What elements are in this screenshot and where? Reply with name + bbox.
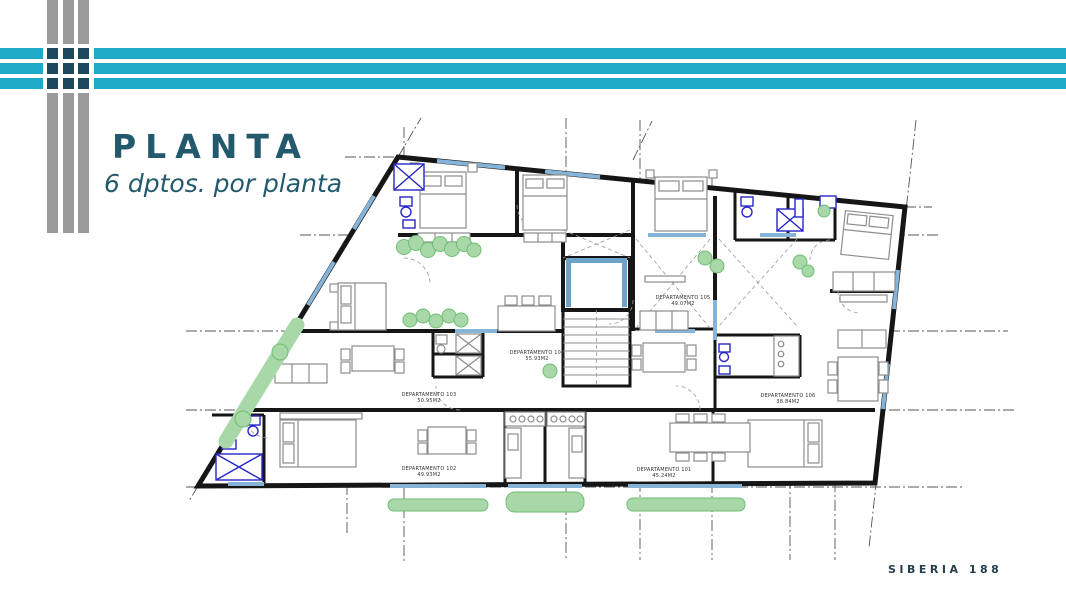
shower-box bbox=[216, 454, 262, 480]
bed bbox=[841, 211, 893, 260]
bed bbox=[338, 283, 386, 330]
sink bbox=[795, 199, 803, 217]
tv-console bbox=[840, 295, 887, 302]
kitchen bbox=[774, 336, 799, 376]
shrub-row bbox=[506, 492, 584, 512]
side-table bbox=[330, 284, 338, 292]
side-table bbox=[646, 170, 654, 178]
sofa bbox=[275, 364, 327, 383]
side-table bbox=[709, 170, 717, 178]
dining-set bbox=[341, 346, 404, 373]
shrub-row bbox=[388, 499, 488, 511]
side-table bbox=[468, 163, 477, 172]
side-table bbox=[330, 322, 338, 330]
presentation-slide: PLANTA 6 dptos. por planta SIBERIA 188 bbox=[0, 0, 1066, 600]
sofa bbox=[833, 272, 895, 291]
dining-set bbox=[418, 427, 476, 454]
bed bbox=[748, 420, 822, 467]
wardrobe bbox=[524, 233, 566, 242]
sideboard bbox=[280, 413, 362, 419]
bed bbox=[523, 175, 567, 230]
bed bbox=[420, 172, 466, 228]
floor-plan: DEPARTAMENTO 10145.24M2 DEPARTAMENTO 102… bbox=[0, 0, 1066, 600]
bed bbox=[280, 420, 356, 467]
sofa bbox=[838, 330, 886, 348]
shrub-row bbox=[627, 498, 745, 511]
bed bbox=[655, 177, 707, 231]
sink bbox=[403, 220, 415, 228]
tv-console bbox=[645, 276, 685, 282]
sofa bbox=[640, 311, 688, 330]
sink bbox=[719, 366, 730, 374]
shower-box bbox=[394, 164, 424, 190]
dining-set bbox=[498, 296, 555, 331]
